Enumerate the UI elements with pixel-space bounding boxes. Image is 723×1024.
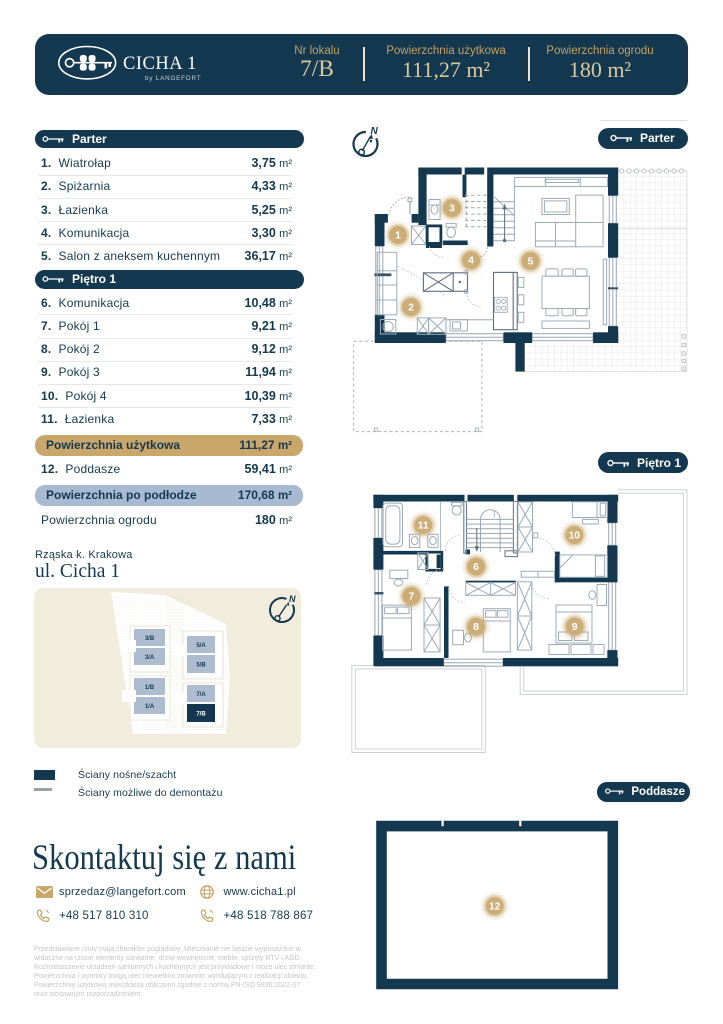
svg-text:7: 7 (408, 591, 414, 603)
svg-text:10: 10 (568, 529, 580, 541)
svg-text:5: 5 (527, 255, 533, 267)
svg-text:1: 1 (395, 229, 401, 241)
svg-text:8: 8 (473, 621, 479, 633)
svg-text:4: 4 (468, 255, 474, 267)
svg-text:3: 3 (449, 202, 455, 214)
svg-text:2: 2 (408, 301, 414, 313)
svg-text:12: 12 (489, 901, 501, 913)
svg-text:9: 9 (572, 621, 578, 633)
svg-text:11: 11 (418, 520, 429, 532)
svg-text:6: 6 (473, 561, 479, 573)
